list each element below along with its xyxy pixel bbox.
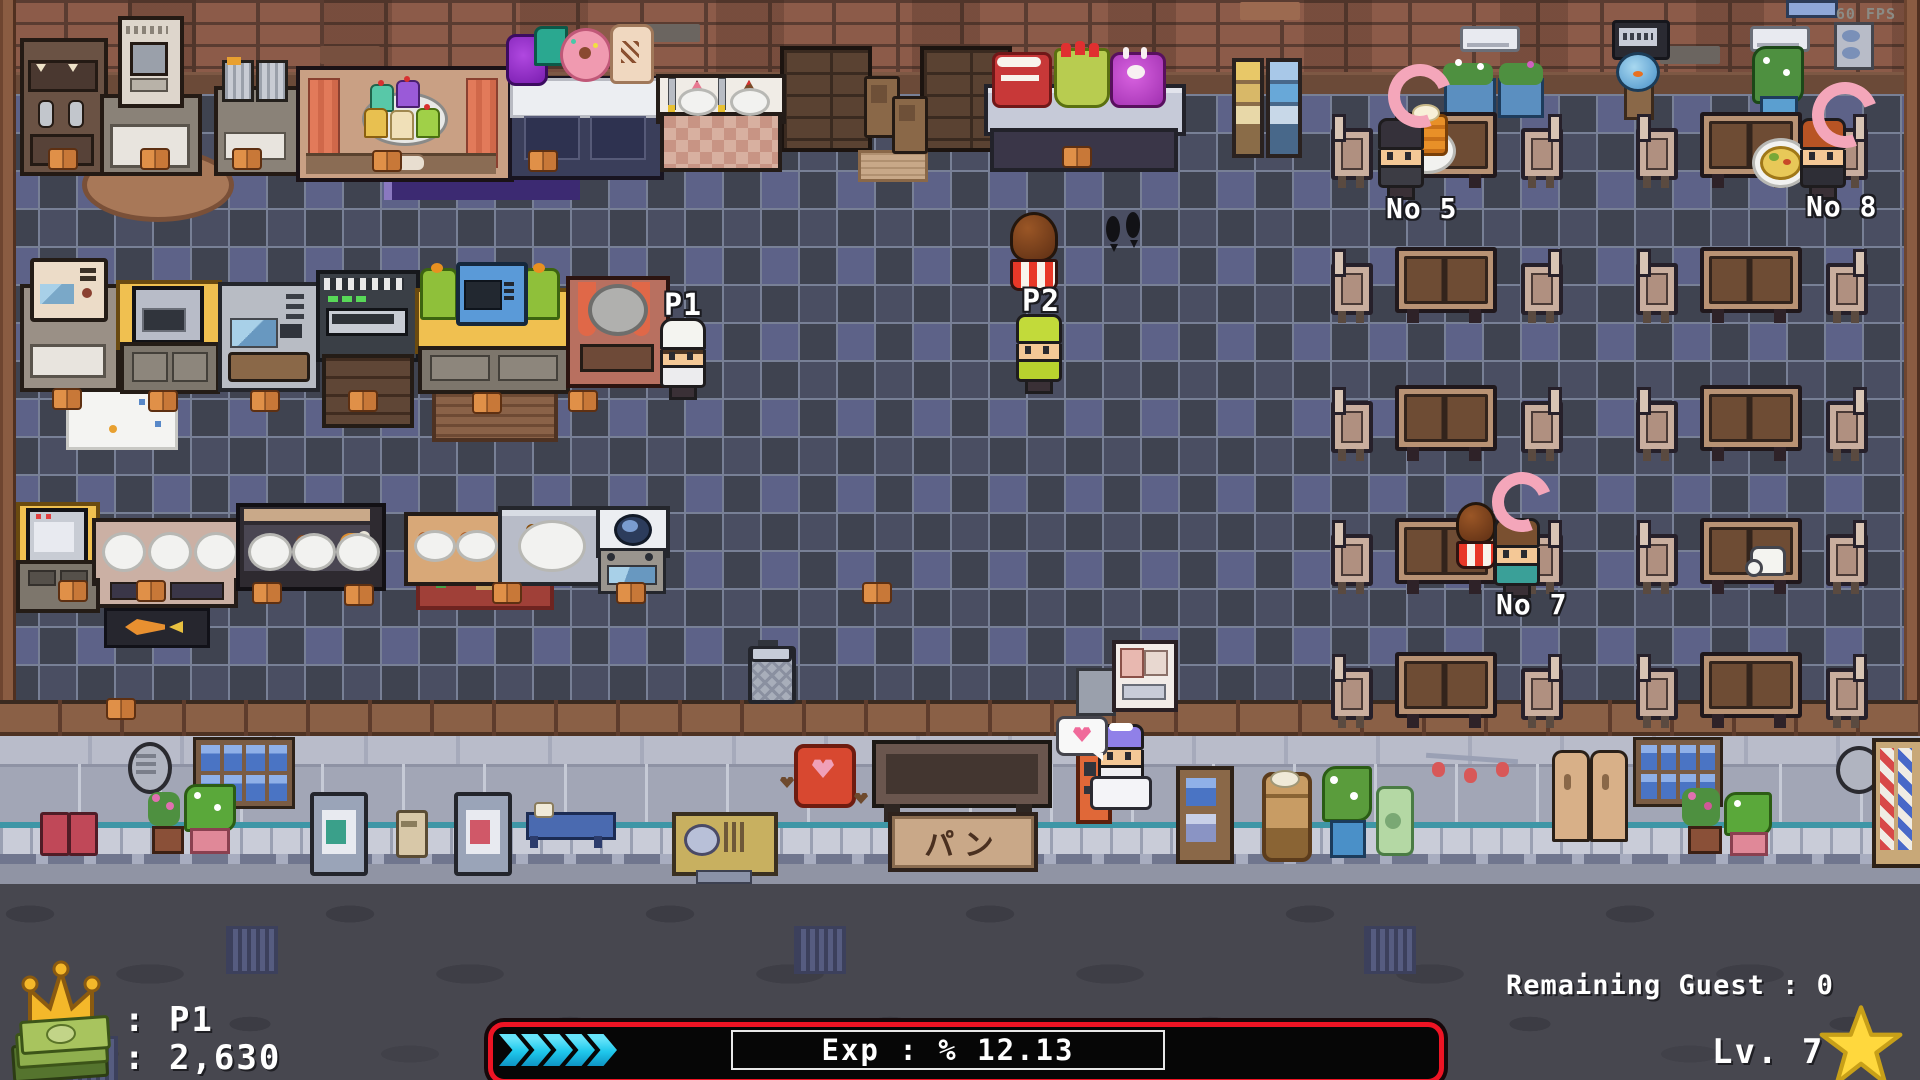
cupcake <box>364 108 388 138</box>
bread-sprite <box>616 582 646 604</box>
guest-no8-label: No 8 <box>1806 190 1877 223</box>
trash-can[interactable] <box>748 646 796 704</box>
dough-machine[interactable] <box>1112 640 1178 712</box>
dining-table[interactable] <box>1700 247 1802 313</box>
pastry-bag <box>610 24 654 84</box>
dining-chair[interactable] <box>1521 668 1563 720</box>
croc-plant <box>1322 766 1368 858</box>
toaster-oven[interactable] <box>30 258 108 322</box>
dining-chair[interactable] <box>1521 128 1563 180</box>
oven-display-unit[interactable] <box>116 280 222 350</box>
game-screen: 60 FPS <box>0 0 1920 1080</box>
lantern-garland <box>1426 750 1518 786</box>
fish-bowl <box>1616 52 1660 92</box>
doormat <box>858 150 928 182</box>
dining-chair[interactable] <box>1331 128 1373 180</box>
bread-sprite <box>136 580 166 602</box>
dining-chair[interactable] <box>1826 668 1868 720</box>
bread-sprite <box>106 698 136 720</box>
dining-table[interactable] <box>1395 385 1497 451</box>
dining-chair[interactable] <box>1331 263 1373 315</box>
red-seats[interactable] <box>40 812 96 852</box>
bread-sprite <box>372 150 402 172</box>
bread-sprite <box>348 390 378 412</box>
dining-chair[interactable] <box>1521 401 1563 453</box>
grill-station[interactable] <box>316 270 420 362</box>
knife <box>718 78 726 110</box>
dining-chair[interactable] <box>1636 668 1678 720</box>
heart-flower-stand <box>794 744 856 808</box>
frosted-donut <box>560 28 612 82</box>
cupcake <box>390 110 414 140</box>
fabric-stand <box>1176 766 1234 864</box>
sewer-grate <box>794 926 846 974</box>
metal-bucket[interactable] <box>222 60 254 102</box>
sewer-grate <box>226 926 278 974</box>
salad-counter-base <box>96 578 238 608</box>
left-wall-wood <box>0 0 16 720</box>
sparkle-bush <box>184 784 232 852</box>
pot-station[interactable] <box>566 276 670 388</box>
thin-wall-shelf[interactable] <box>1232 58 1264 158</box>
star-icon <box>1818 1004 1904 1080</box>
dining-chair[interactable] <box>1636 128 1678 180</box>
salad-counter[interactable] <box>92 518 242 586</box>
street-bin <box>396 810 428 858</box>
wall-device <box>1834 22 1874 70</box>
flower-pot <box>146 792 184 852</box>
bread-sprite <box>232 148 262 170</box>
dining-chair[interactable] <box>1331 534 1373 586</box>
jelly-mold <box>420 268 458 320</box>
purple-rabbit-cake <box>1110 52 1166 108</box>
red-velvet-cake <box>992 52 1052 108</box>
bread-sprite <box>250 390 280 412</box>
bread-sprite <box>58 580 88 602</box>
guest-no7-label: No 7 <box>1496 588 1567 621</box>
glove-icon <box>1750 546 1786 576</box>
cupcake-display-case[interactable] <box>296 66 514 182</box>
striped-banner <box>1872 738 1920 868</box>
dining-chair[interactable] <box>1331 668 1373 720</box>
ac-panel <box>1460 26 1520 52</box>
guest-no5-label: No 5 <box>1386 192 1457 225</box>
wood-stool[interactable] <box>892 96 928 154</box>
oven-cabinet <box>120 342 220 394</box>
dining-chair[interactable] <box>1826 401 1868 453</box>
player2-chef[interactable] <box>1016 314 1062 394</box>
bread-sprite <box>568 390 598 412</box>
fish-mat <box>104 608 210 648</box>
metal-bucket[interactable] <box>256 60 288 102</box>
cabinet-handle <box>68 100 84 128</box>
bread-sprite <box>472 392 502 414</box>
guest-no5[interactable] <box>1378 118 1424 200</box>
level-text: Lv. 7 <box>1712 1032 1824 1072</box>
barrel <box>1262 772 1312 862</box>
bread-sprite <box>1062 146 1092 168</box>
bread-sprite <box>252 582 282 604</box>
meat-display-case[interactable] <box>236 503 386 591</box>
dining-chair[interactable] <box>1826 534 1868 586</box>
flower-pot <box>1682 788 1722 854</box>
dining-chair[interactable] <box>1636 401 1678 453</box>
player1-label: P1 <box>664 288 702 323</box>
street-bench-table[interactable] <box>872 740 1052 808</box>
heart-icon <box>1073 726 1091 742</box>
sparkle-bush <box>1724 792 1768 856</box>
restaurant-floor <box>0 94 1920 720</box>
owner-name-text: : P1 <box>124 1000 214 1040</box>
dining-table[interactable] <box>1395 247 1497 313</box>
dining-chair[interactable] <box>1636 263 1678 315</box>
pasta-plate <box>1760 146 1802 180</box>
top-shelf <box>1786 0 1838 18</box>
microwave-cabinet <box>418 346 570 394</box>
bread-sprite <box>344 584 374 606</box>
wood-shelf[interactable] <box>780 46 872 152</box>
player1-chef[interactable] <box>660 318 706 400</box>
wall-vent <box>128 742 172 794</box>
cake-slice-table[interactable] <box>656 74 778 170</box>
bottom-wall-planks <box>0 700 1920 736</box>
bread-sprite <box>492 582 522 604</box>
prep-side-table <box>1076 668 1116 716</box>
food-stand-sign <box>672 812 778 876</box>
bread-sprite <box>148 390 178 412</box>
thin-wall-shelf[interactable] <box>1266 58 1302 158</box>
magazine-rack[interactable] <box>310 792 368 876</box>
cupcake <box>396 80 420 108</box>
knife <box>668 78 676 110</box>
bread-sprite <box>140 148 170 170</box>
bread-sprite <box>52 388 82 410</box>
brick-dark <box>320 46 380 64</box>
burger-table[interactable] <box>498 506 602 586</box>
dining-chair[interactable] <box>1331 401 1373 453</box>
cabinet-handle <box>38 100 54 128</box>
sausage-table[interactable] <box>404 512 504 586</box>
dining-table[interactable] <box>1700 385 1802 451</box>
exp-label: Exp : % 12.13 <box>731 1030 1165 1070</box>
exp-progress-bar: Exp : % 12.13 <box>488 1022 1444 1080</box>
bakery-sign-text: パン <box>924 820 1002 864</box>
bread-sprite <box>48 148 78 170</box>
right-wall-wood <box>1904 0 1920 720</box>
fps-counter: 60 FPS <box>1836 5 1896 23</box>
dining-chair[interactable] <box>1636 534 1678 586</box>
saloon-doors[interactable] <box>1552 750 1626 840</box>
maid-skirt <box>1090 776 1152 810</box>
sewer-grate <box>1364 926 1416 974</box>
remaining-guest-text: Remaining Guest : 0 <box>1506 970 1834 1001</box>
espresso-machine[interactable] <box>118 16 184 108</box>
tulip-salad-bowl <box>1054 48 1110 108</box>
capsule-machine[interactable] <box>1376 786 1414 856</box>
money-icon <box>10 1016 110 1078</box>
dining-table[interactable] <box>1700 652 1802 718</box>
speech-bubble <box>1056 716 1108 756</box>
bread-sprite <box>528 150 558 172</box>
flower-box <box>1498 78 1544 118</box>
bakery-sign: パン <box>888 812 1038 872</box>
magazine-rack[interactable] <box>454 792 512 876</box>
dining-chair[interactable] <box>1826 263 1868 315</box>
cupcake <box>416 108 440 138</box>
carried-sundae <box>1010 212 1058 291</box>
cup <box>534 802 554 818</box>
player2-label: P2 <box>1022 284 1060 319</box>
dishwasher[interactable] <box>218 282 320 392</box>
bread-sprite <box>862 582 892 604</box>
microwave[interactable] <box>456 262 528 326</box>
blue-bench[interactable] <box>526 808 614 850</box>
dining-chair[interactable] <box>1521 263 1563 315</box>
dining-table[interactable] <box>1395 652 1497 718</box>
brick-light <box>1240 2 1300 20</box>
money-amount-text: : 2,630 <box>124 1038 281 1078</box>
sundae-on-table <box>1456 502 1496 569</box>
